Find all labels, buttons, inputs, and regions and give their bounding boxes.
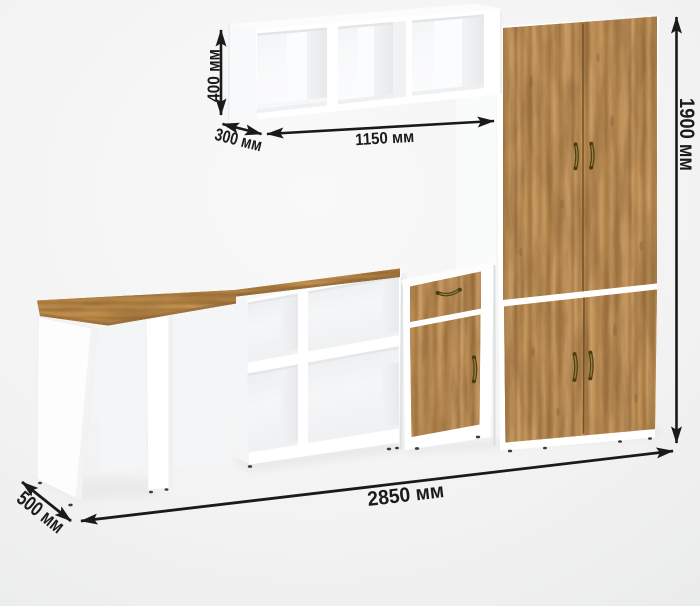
svg-text:1150 мм: 1150 мм xyxy=(355,128,415,149)
svg-text:400 мм: 400 мм xyxy=(203,49,223,102)
svg-text:1900 мм: 1900 мм xyxy=(675,98,698,171)
